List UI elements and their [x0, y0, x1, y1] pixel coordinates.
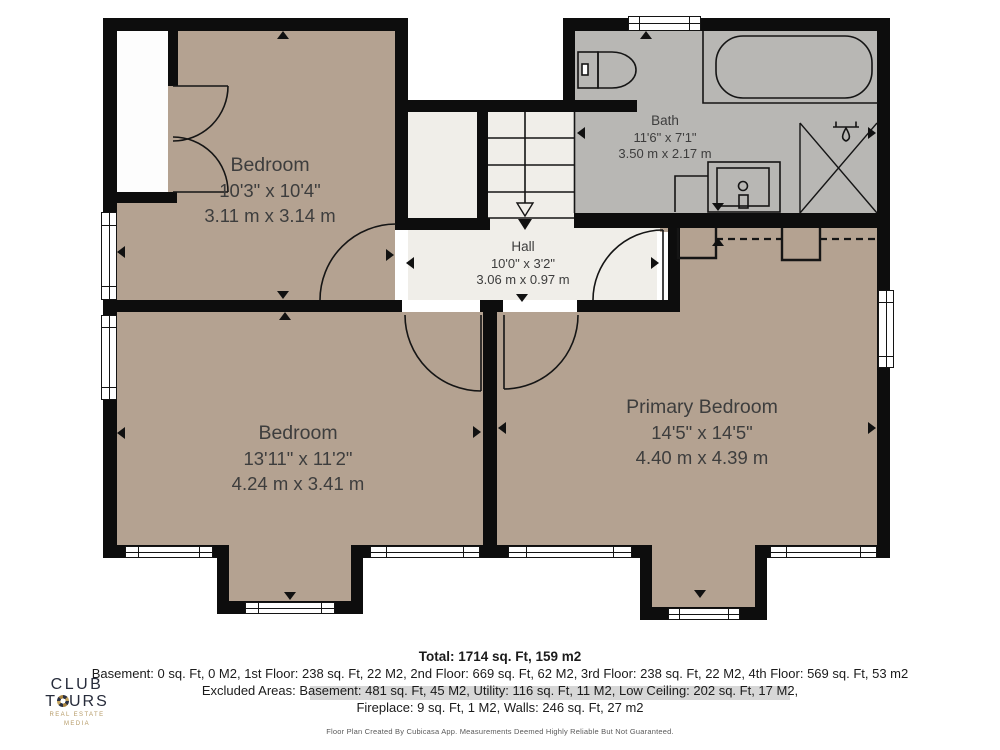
floor-areas-text: Basement: 0 sq. Ft, 0 M2, 1st Floor: 238…: [0, 665, 1000, 682]
room-dim-metric: 4.40 m x 4.39 m: [626, 445, 778, 470]
room-label-primary-bedroom: Primary Bedroom 14'5" x 14'5" 4.40 m x 4…: [626, 394, 778, 470]
room-label-hall: Hall 10'0" x 3'2" 3.06 m x 0.97 m: [476, 238, 569, 288]
room-dim-imperial: 10'3" x 10'4": [204, 178, 335, 203]
room-dim-metric: 4.24 m x 3.41 m: [232, 471, 365, 496]
disclaimer-text: Floor Plan Created By Cubicasa App. Meas…: [0, 727, 1000, 736]
total-area-text: Total: 1714 sq. Ft, 159 m2: [0, 648, 1000, 665]
room-label-bedroom-2: Bedroom 13'11" x 11'2" 4.24 m x 3.41 m: [232, 420, 365, 496]
room-name: Hall: [476, 238, 569, 256]
room-dim-imperial: 10'0" x 3'2": [476, 256, 569, 272]
room-dim-metric: 3.11 m x 3.14 m: [204, 203, 335, 228]
room-dim-metric: 3.06 m x 0.97 m: [476, 272, 569, 288]
plan-linework: [0, 0, 1000, 650]
room-name: Bedroom: [232, 420, 365, 446]
room-dim-metric: 3.50 m x 2.17 m: [618, 146, 711, 162]
excluded-areas-text-2: Fireplace: 9 sq. Ft, 1 M2, Walls: 246 sq…: [0, 699, 1000, 716]
summary-footer: Total: 1714 sq. Ft, 159 m2 Basement: 0 s…: [0, 648, 1000, 736]
room-name: Bath: [618, 112, 711, 130]
room-name: Bedroom: [204, 152, 335, 178]
room-name: Primary Bedroom: [626, 394, 778, 420]
floor-plan-page: Bedroom 10'3" x 10'4" 3.11 m x 3.14 m Ba…: [0, 0, 1000, 750]
room-dim-imperial: 11'6" x 7'1": [618, 130, 711, 146]
room-dim-imperial: 14'5" x 14'5": [626, 420, 778, 445]
measure-ticks: [117, 31, 876, 600]
room-dim-imperial: 13'11" x 11'2": [232, 446, 365, 471]
excluded-areas-text-1: Excluded Areas: Basement: 481 sq. Ft, 45…: [0, 682, 1000, 699]
room-label-bath: Bath 11'6" x 7'1" 3.50 m x 2.17 m: [618, 112, 711, 162]
room-label-bedroom-1: Bedroom 10'3" x 10'4" 3.11 m x 3.14 m: [204, 152, 335, 228]
